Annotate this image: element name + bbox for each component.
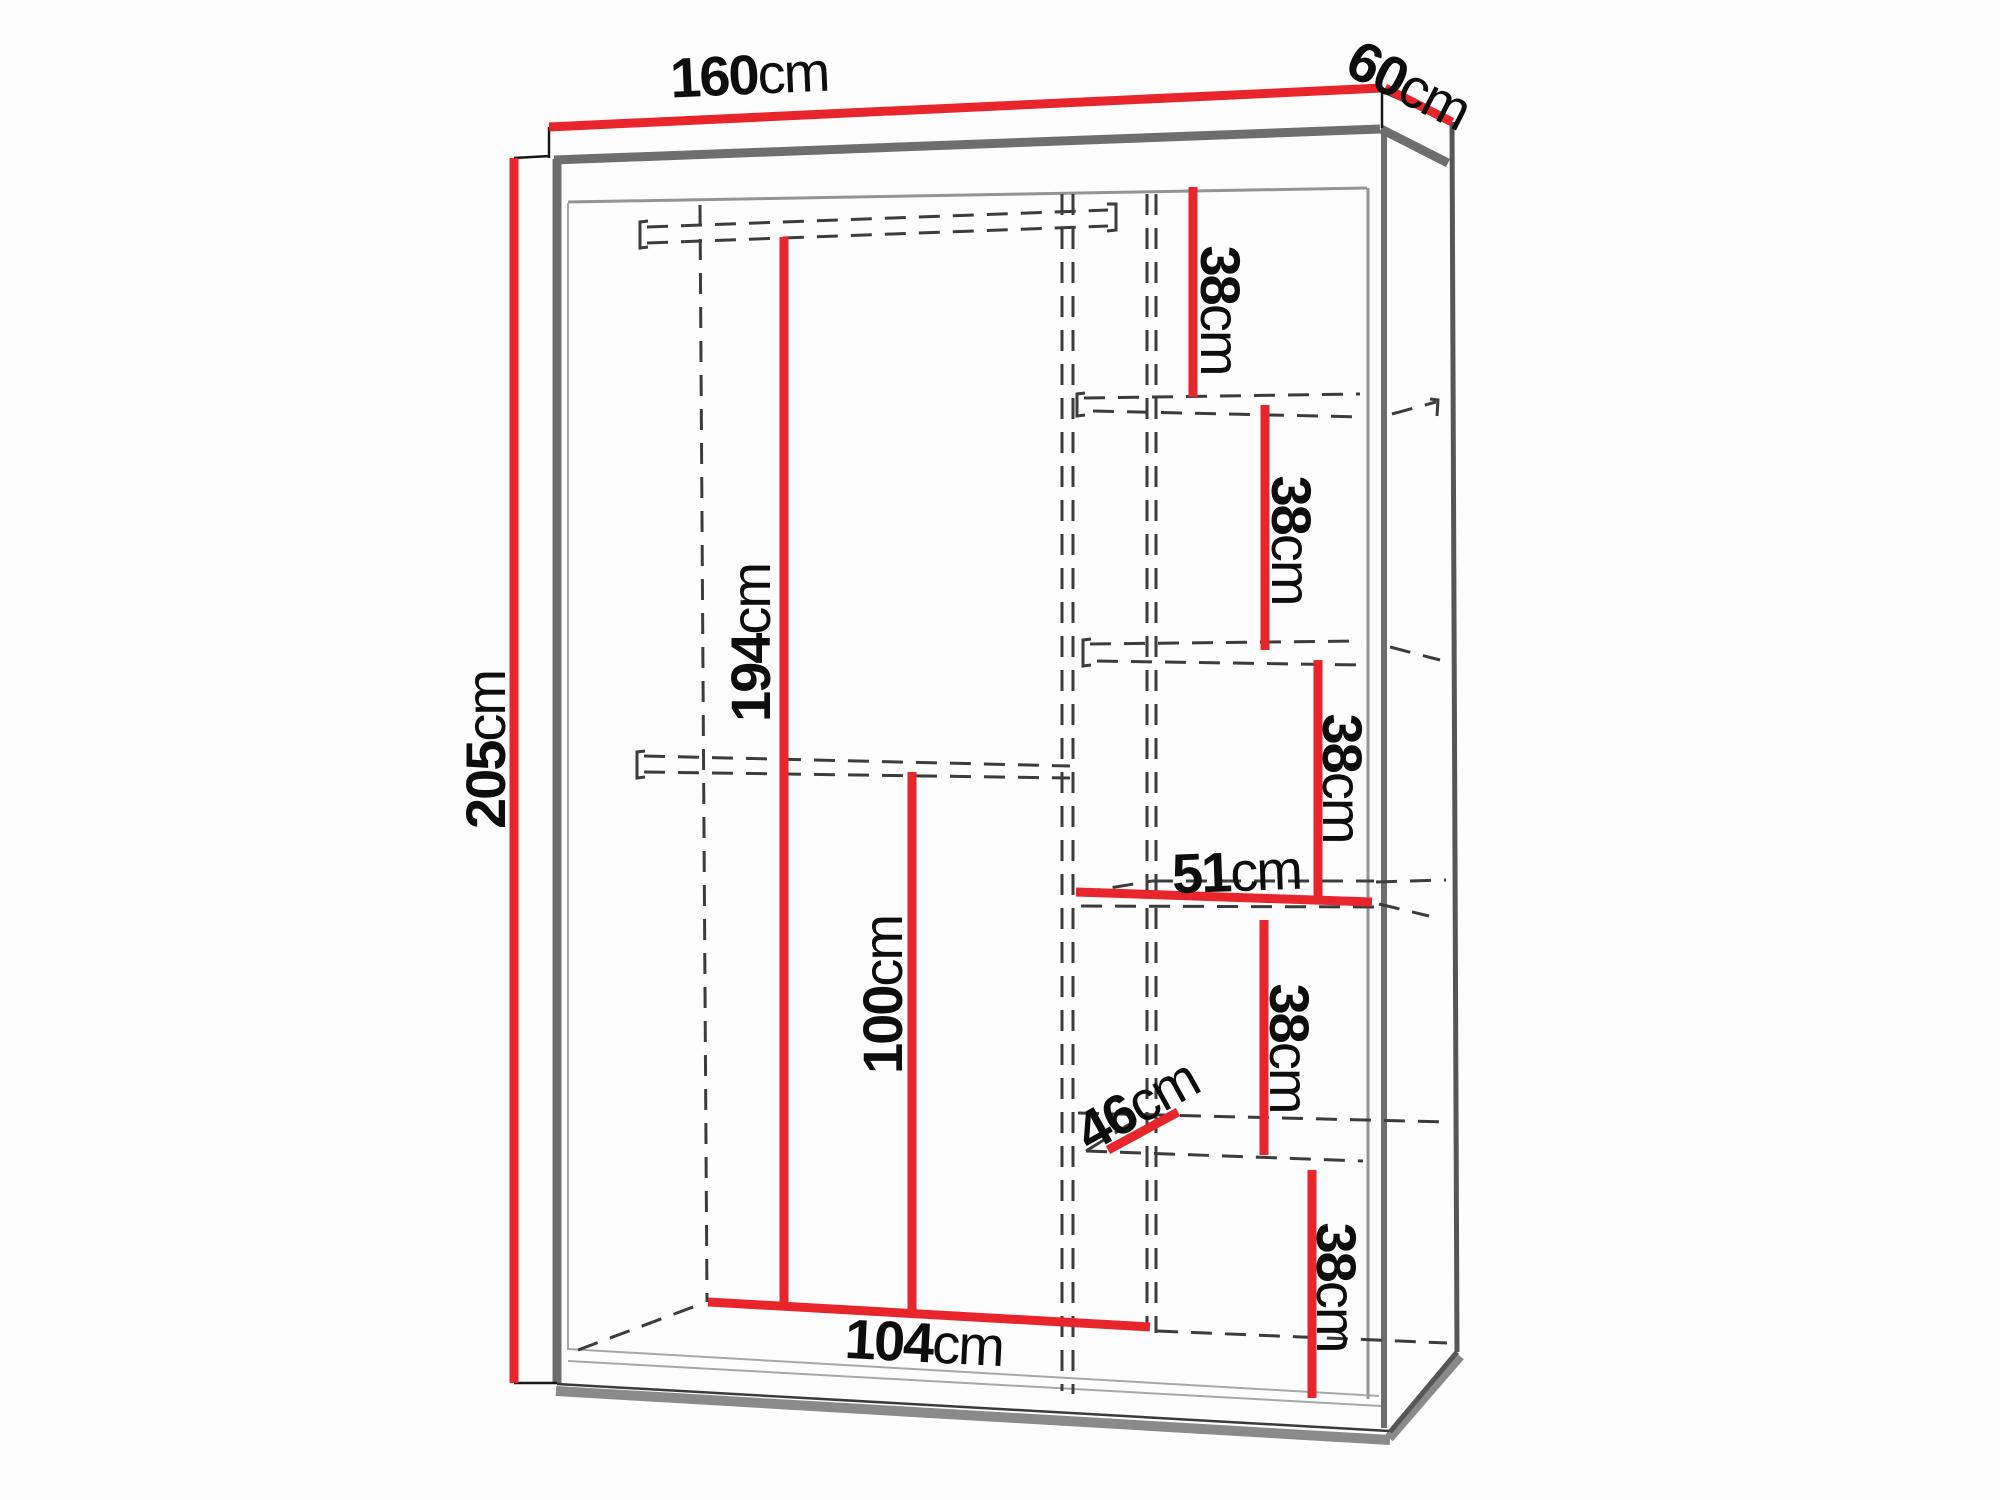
mid-shelf-bottom [644,772,1070,778]
diagram-canvas: 160cm 60cm 205cm 194cm 100cm 104cm 51cm … [0,0,2000,1500]
label-46: 46cm [1065,1046,1208,1164]
shelf1-bracket [1077,393,1085,416]
bottom-right-chamfer [1390,1352,1457,1432]
wardrobe-dimension-diagram: 160cm 60cm 205cm 194cm 100cm 104cm 51cm … [0,0,2000,1500]
label-194: 194cm [719,564,782,722]
shelf2-back-line [1090,641,1362,644]
bottom-left-diagonal [578,1304,701,1350]
chamfer-shadow [1389,1356,1460,1438]
label-38-4: 38cm [1258,984,1321,1113]
hanging-rail-bottom [647,226,1108,243]
shelf2-front-line [1097,661,1363,665]
shelf1-front-line [1093,411,1362,417]
bottom-back-edge-right [1157,1331,1447,1343]
shelf1-side-mark [1392,402,1436,414]
rail-left-bracket [640,221,648,248]
label-104: 104cm [843,1307,1004,1378]
rail-right-bracket [1107,204,1116,231]
bottom-front-edge [557,1384,1389,1431]
label-100: 100cm [851,916,914,1074]
height-top-tick [514,156,550,158]
right-back-edge [1452,122,1457,1352]
shelf4-front-line [1086,1151,1363,1161]
interior-ceiling-line [568,188,1367,202]
label-38-1: 38cm [1189,246,1252,375]
shelf3-side-back-mark [1376,880,1446,882]
label-51: 51cm [1171,838,1302,905]
mid-shelf-bracket [637,751,645,778]
shelf2-side-mark [1390,647,1440,660]
label-38-2: 38cm [1260,476,1323,605]
back-left-edge [700,205,707,1302]
shelf1-back-line [1084,394,1360,398]
shelf2-bracket [1083,639,1091,666]
top-front-edge [554,129,1380,160]
mid-shelf-top [644,756,1070,766]
bottom-shadow [556,1391,1390,1440]
label-38-5: 38cm [1305,1223,1368,1352]
hanging-rail-top [647,210,1108,227]
shelf3-front-line [1081,906,1374,907]
label-height-205: 205cm [454,671,517,829]
label-width-160: 160cm [669,40,830,110]
label-38-3: 38cm [1311,714,1374,843]
label-depth-60: 60cm [1337,27,1480,142]
